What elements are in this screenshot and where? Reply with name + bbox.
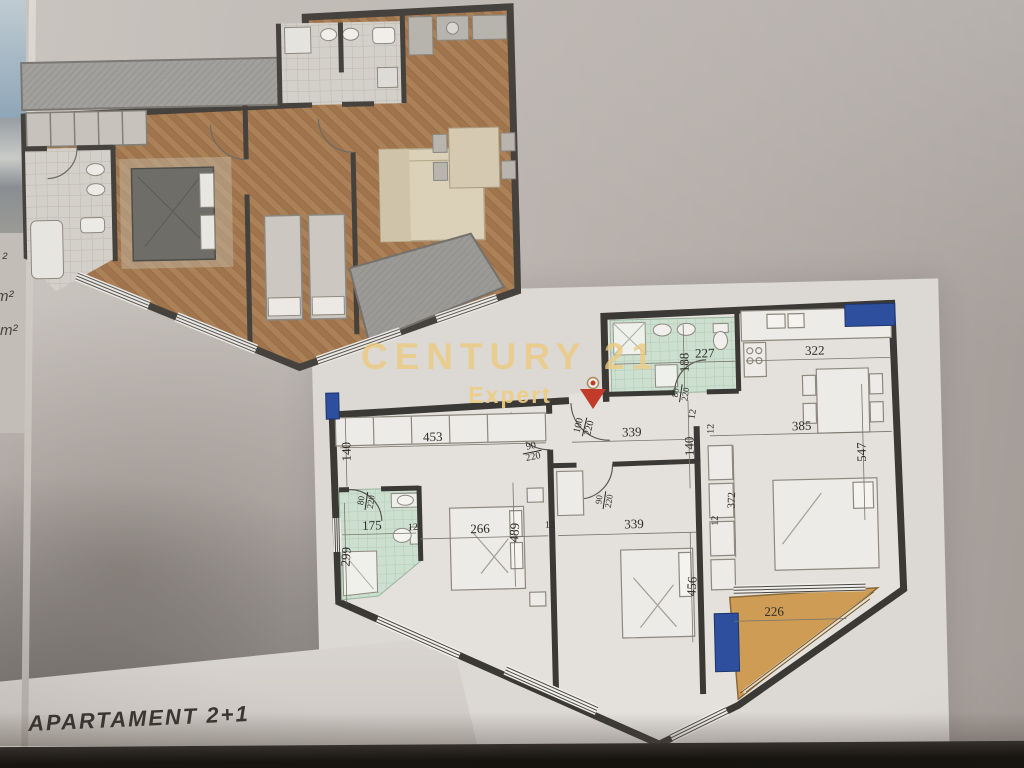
upper-terrace-top — [21, 57, 308, 110]
dim-label: 140 — [682, 436, 695, 456]
area-unit-label: m² — [0, 322, 18, 339]
lower-floorplan-drawing: 4531409022010022033914012227188802201232… — [317, 291, 928, 761]
dim-label: 80220 — [670, 383, 691, 403]
dim-label: 100220 — [572, 415, 597, 438]
dim-label: 90220 — [521, 440, 544, 464]
dim-label: 299 — [339, 547, 353, 567]
area-unit-label: m² — [0, 288, 14, 305]
upper-master-bed — [119, 157, 233, 269]
dim-label: 453 — [423, 430, 443, 443]
dim-label: 385 — [792, 419, 812, 432]
dim-label: 12 — [688, 409, 699, 420]
century21-logo-icon — [578, 376, 608, 410]
dim-label: 12 — [545, 521, 555, 531]
upper-closet-row — [26, 111, 147, 148]
dim-label: 12 — [408, 523, 418, 533]
dim-label: 489 — [507, 522, 521, 542]
dim-label: 140 — [339, 442, 352, 462]
dim-label: 80220 — [356, 491, 377, 511]
area-unit-label: ² — [2, 250, 7, 267]
dim-label: 266 — [470, 522, 490, 535]
dim-label: 188 — [677, 353, 690, 373]
dim-label: 226 — [764, 605, 784, 618]
dim-label: 372 — [727, 492, 738, 509]
dim-label: 547 — [855, 442, 868, 462]
dim-label: 227 — [695, 346, 715, 359]
dim-label: 339 — [622, 425, 642, 438]
lower-plan-labels: 4531409022010022033914012227188802201232… — [317, 291, 928, 761]
dim-label: 339 — [624, 517, 644, 530]
dim-label: 322 — [805, 344, 825, 357]
dim-label: 175 — [362, 518, 382, 531]
dim-label: 12 — [711, 516, 721, 526]
floorplan-photo: ²m²m² — [0, 0, 1024, 768]
dim-label: 12 — [707, 424, 717, 434]
dim-label: 90220 — [594, 490, 615, 510]
dim-label: 456 — [684, 576, 698, 596]
